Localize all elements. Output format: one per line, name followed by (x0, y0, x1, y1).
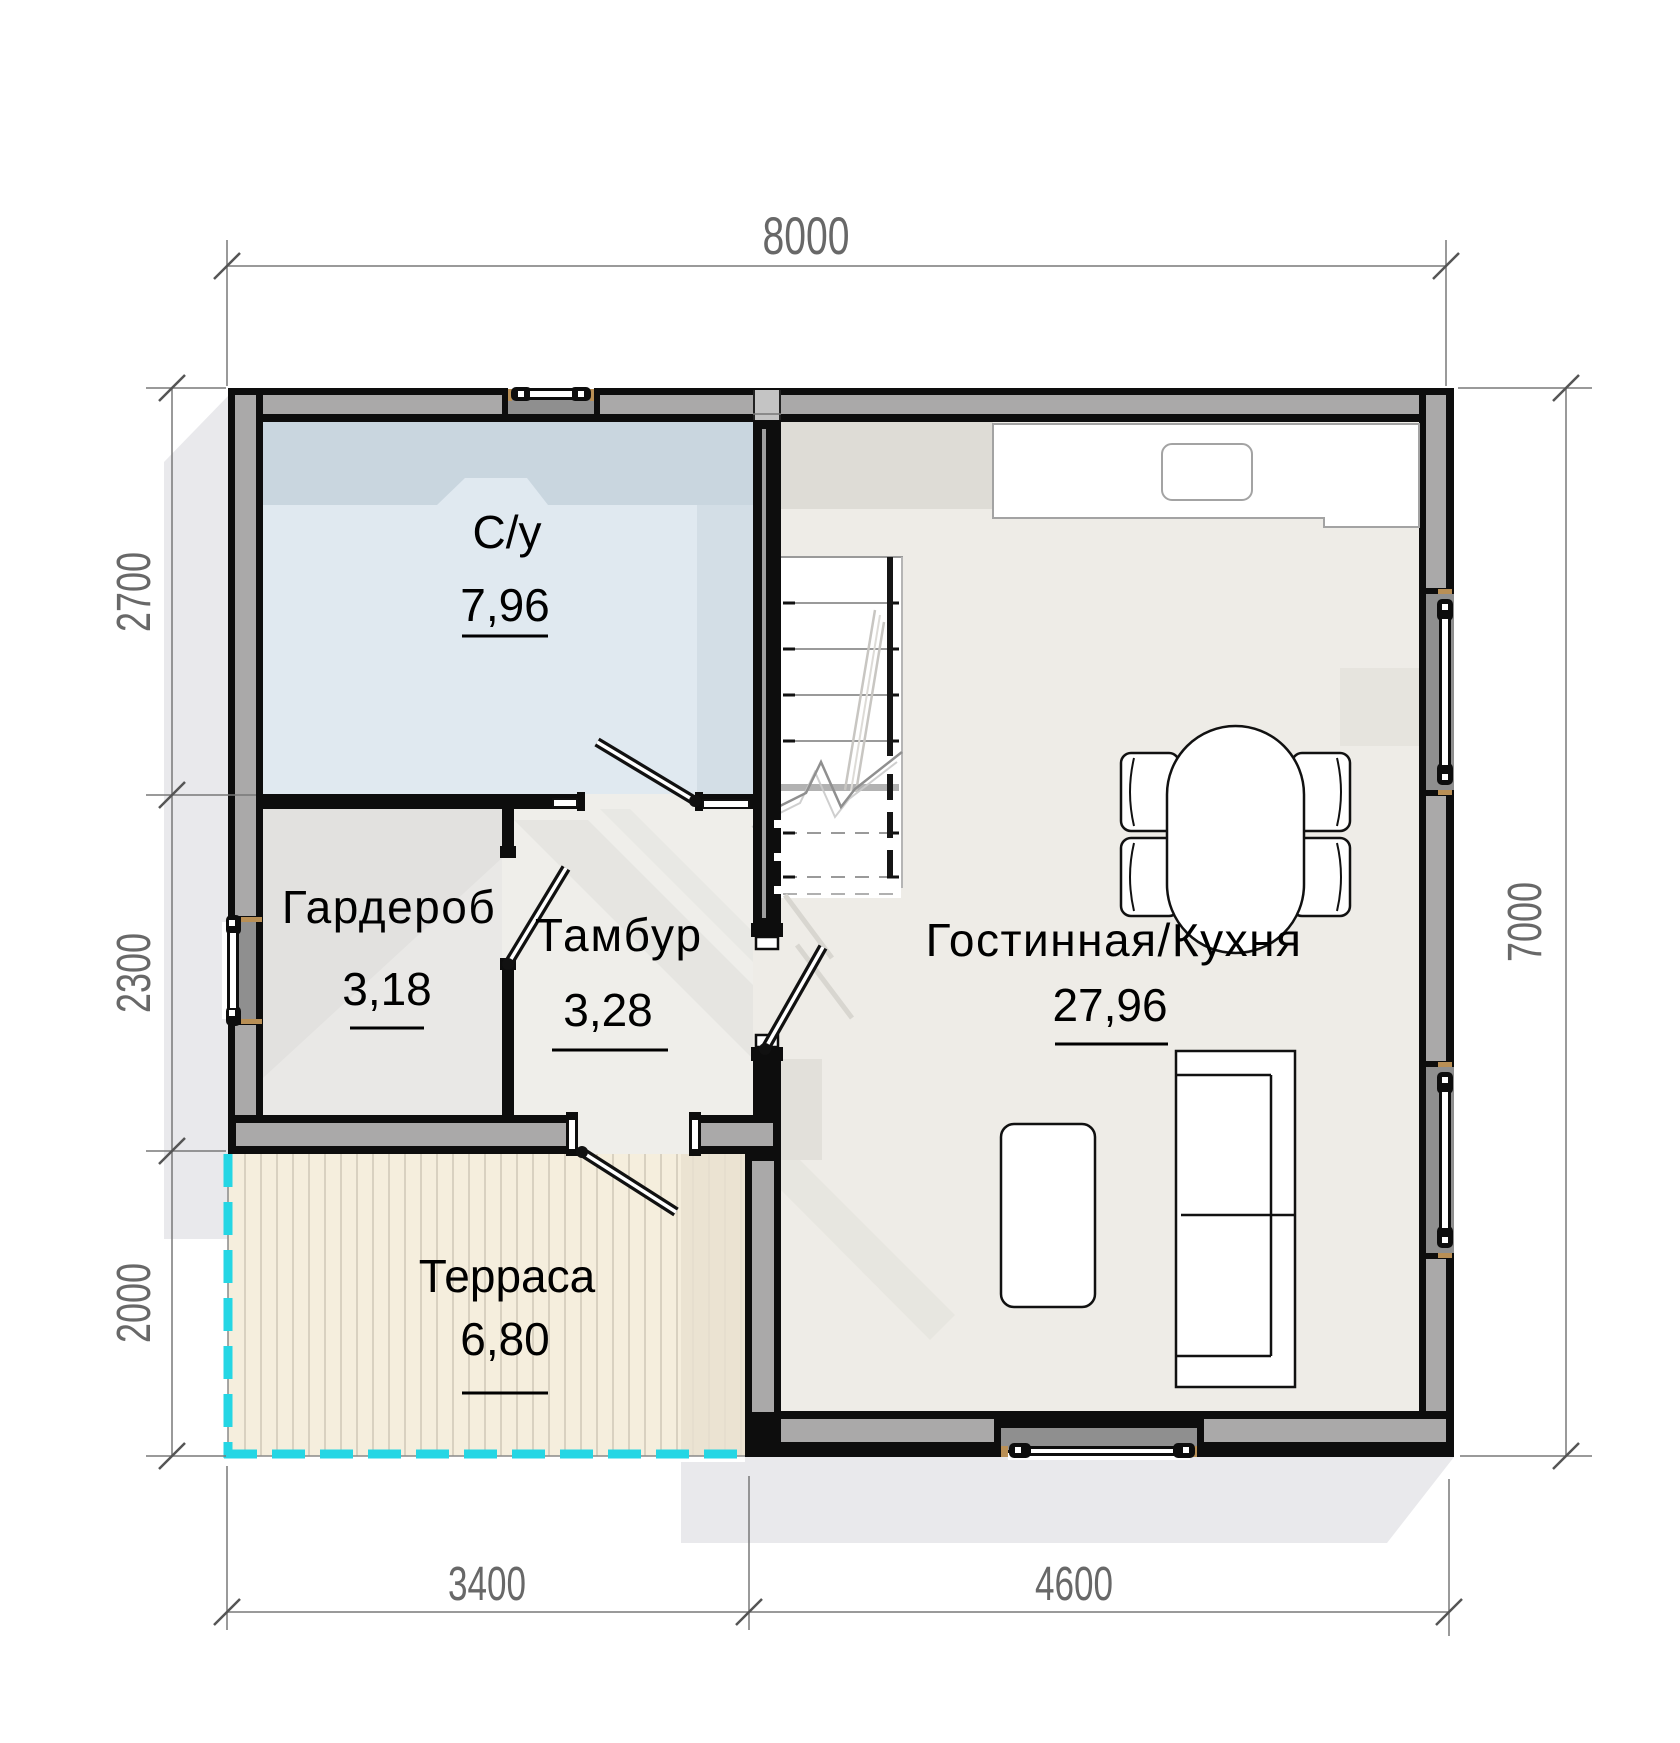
svg-text:6,80: 6,80 (460, 1313, 550, 1365)
svg-text:3400: 3400 (448, 1558, 526, 1611)
svg-text:3,28: 3,28 (563, 984, 653, 1036)
svg-text:Терраса: Терраса (419, 1250, 596, 1302)
svg-text:2700: 2700 (108, 552, 161, 632)
svg-text:7000: 7000 (1499, 882, 1552, 962)
svg-text:4600: 4600 (1035, 1558, 1113, 1611)
svg-text:2000: 2000 (108, 1263, 161, 1343)
svg-text:С/у: С/у (473, 506, 542, 558)
svg-text:2300: 2300 (108, 933, 161, 1013)
svg-text:Гардероб: Гардероб (282, 881, 496, 933)
svg-text:Гостинная/Кухня: Гостинная/Кухня (926, 914, 1303, 966)
svg-text:7,96: 7,96 (460, 579, 550, 631)
svg-text:27,96: 27,96 (1052, 979, 1167, 1031)
svg-text:8000: 8000 (763, 207, 850, 266)
svg-text:Тамбур: Тамбур (535, 909, 703, 961)
svg-text:3,18: 3,18 (342, 963, 432, 1015)
